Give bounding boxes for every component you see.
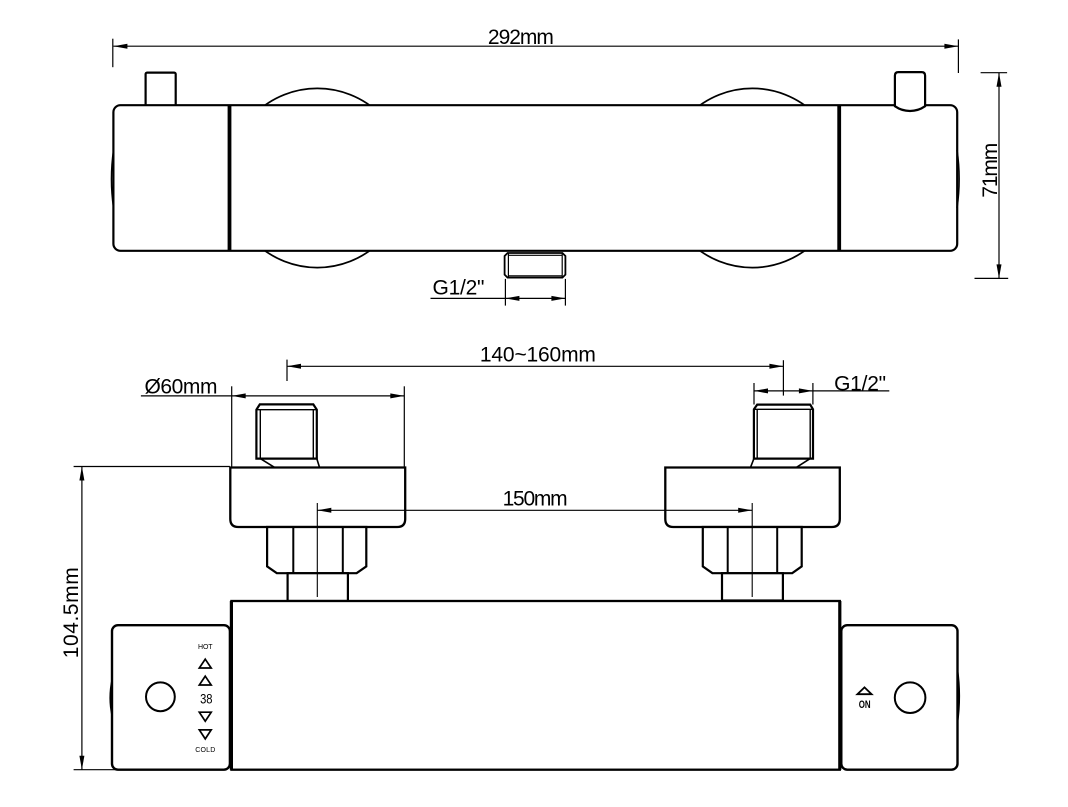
svg-text:104.5mm: 104.5mm	[60, 567, 83, 658]
svg-text:COLD: COLD	[195, 747, 215, 754]
svg-text:71mm: 71mm	[979, 143, 1002, 198]
svg-text:ON: ON	[859, 699, 871, 712]
svg-text:150mm: 150mm	[503, 488, 568, 511]
svg-text:292mm: 292mm	[488, 26, 554, 49]
svg-text:140~160mm: 140~160mm	[480, 344, 596, 367]
svg-text:Ø60mm: Ø60mm	[145, 375, 218, 398]
svg-text:38: 38	[200, 691, 212, 706]
svg-text:G1/2": G1/2"	[433, 277, 485, 300]
svg-text:HOT: HOT	[198, 644, 213, 651]
svg-text:G1/2": G1/2"	[834, 372, 886, 395]
